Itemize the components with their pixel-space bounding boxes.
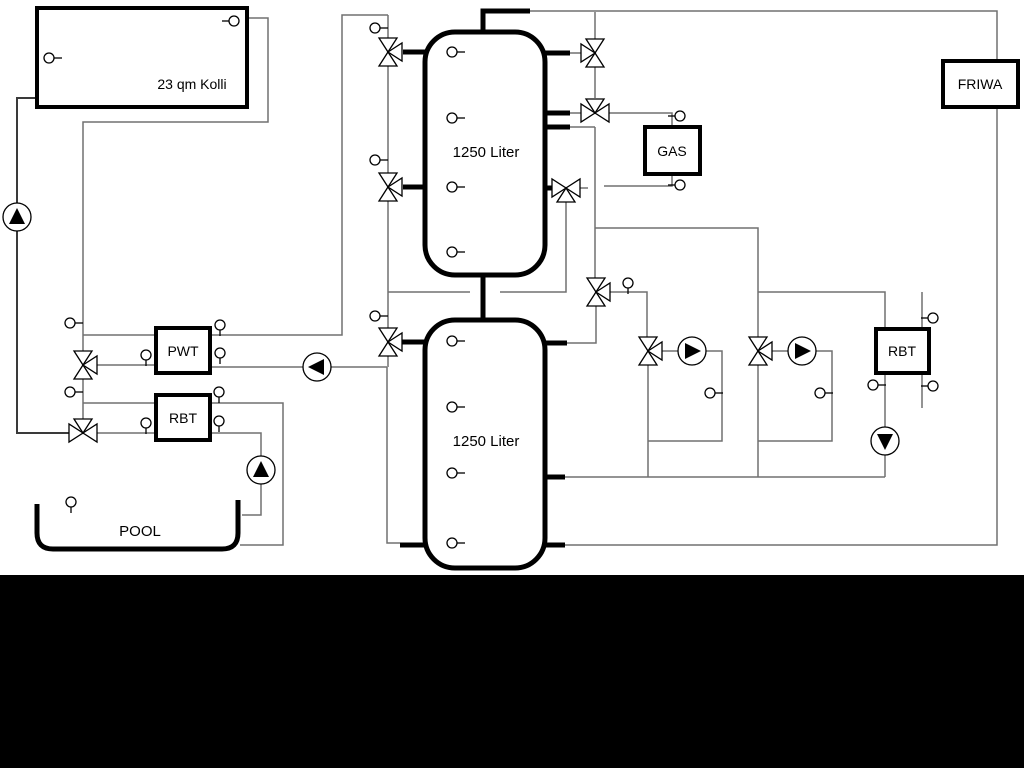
gas-boiler: GAS	[645, 127, 700, 174]
rbt-left-label: RBT	[169, 410, 197, 426]
pool-label: POOL	[119, 523, 161, 540]
buffer-tank-top: 1250 Liter	[425, 32, 545, 275]
collector-box	[37, 8, 247, 107]
hydraulic-schematic-page: 23 qm Kolli 1250 Liter 1250 Liter GAS FR…	[0, 0, 1024, 768]
hydraulic-schematic: 23 qm Kolli 1250 Liter 1250 Liter GAS FR…	[0, 0, 1024, 768]
pool-pump-icon	[247, 456, 275, 484]
bottom-bar	[0, 575, 1024, 768]
pwt-label: PWT	[167, 343, 199, 359]
rbt-pump-icon	[871, 427, 899, 455]
solar-collector: 23 qm Kolli	[37, 8, 247, 107]
pwt-heat-exchanger: PWT	[156, 328, 210, 373]
tank2-label: 1250 Liter	[453, 433, 520, 450]
charge-pump-icon	[303, 353, 331, 381]
solar-pump-icon	[3, 203, 31, 231]
heating-pump2-icon	[788, 337, 816, 365]
rbt-right-unit: RBT	[876, 329, 929, 373]
friwa-label: FRIWA	[958, 76, 1003, 92]
tank1-label: 1250 Liter	[453, 144, 520, 161]
heating-pump1-icon	[678, 337, 706, 365]
friwa-module: FRIWA	[943, 61, 1018, 107]
rbt-left-unit: RBT	[156, 395, 210, 440]
collector-label: 23 qm Kolli	[157, 76, 226, 92]
rbt-right-label: RBT	[888, 343, 916, 359]
gas-label: GAS	[657, 143, 687, 159]
buffer-tank-bottom: 1250 Liter	[425, 320, 545, 568]
